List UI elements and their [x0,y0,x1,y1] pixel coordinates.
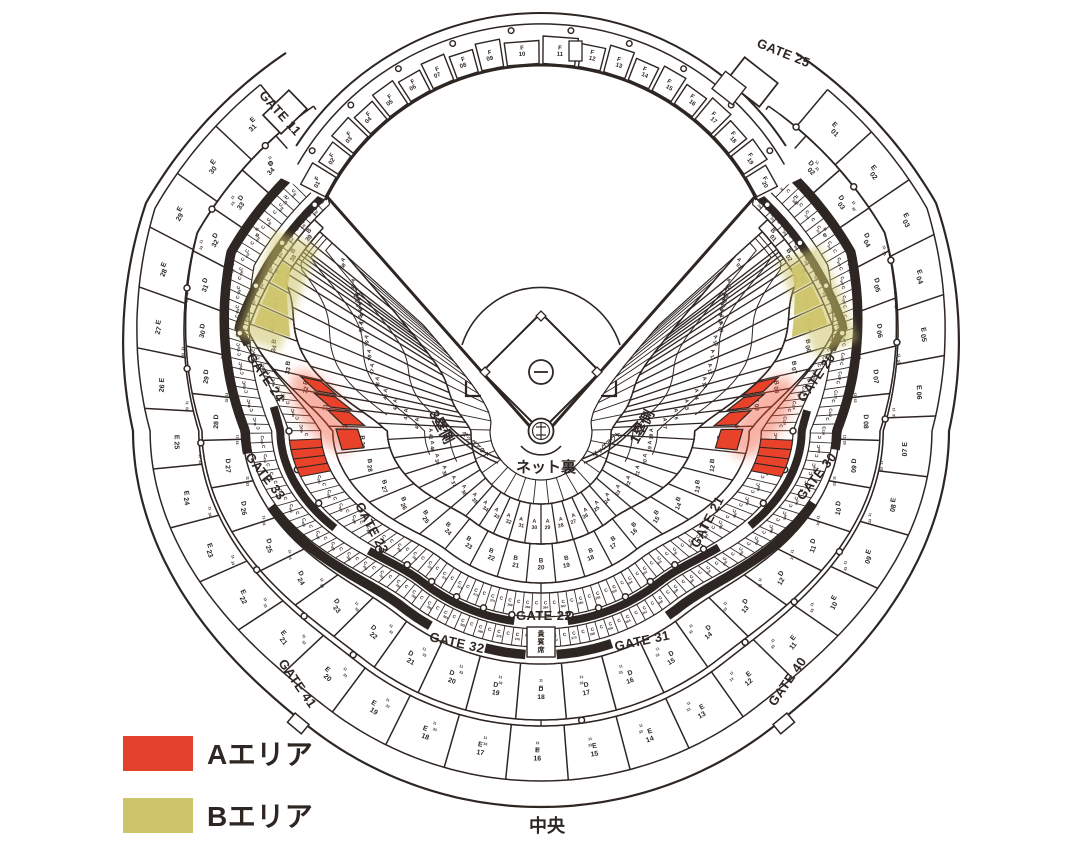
svg-text:貴: 貴 [538,629,545,638]
svg-text:33: 33 [483,742,488,747]
svg-text:33: 33 [579,681,584,686]
svg-text:20: 20 [538,565,545,572]
svg-text:中央: 中央 [529,815,566,836]
svg-text:33: 33 [891,414,895,418]
svg-text:40: 40 [428,446,435,453]
svg-text:33: 33 [880,467,884,471]
svg-text:11: 11 [588,737,592,742]
svg-text:17: 17 [582,689,591,697]
svg-text:18: 18 [537,694,545,701]
svg-text:D: D [862,414,869,419]
svg-text:33: 33 [225,398,230,403]
svg-text:賓: 賓 [537,637,545,646]
svg-text:30: 30 [531,525,537,531]
svg-text:33: 33 [842,441,846,445]
svg-text:402: 402 [291,411,295,417]
svg-text:A: A [415,417,421,421]
svg-text:33: 33 [868,519,873,524]
svg-text:33: 33 [207,512,212,517]
svg-text:ネット裏: ネット裏 [516,458,577,476]
svg-text:11: 11 [842,435,846,439]
svg-text:A: A [661,418,667,422]
svg-text:414: 414 [253,420,257,426]
svg-text:D: D [213,414,220,419]
svg-text:E: E [173,435,180,440]
svg-text:11: 11 [880,461,884,465]
svg-text:29: 29 [203,376,211,385]
svg-text:16: 16 [533,755,541,762]
svg-text:29: 29 [545,525,551,531]
svg-text:18: 18 [649,434,655,440]
svg-text:33: 33 [235,441,239,445]
svg-text:19: 19 [491,689,500,697]
svg-text:11: 11 [198,454,202,458]
svg-text:06: 06 [914,391,922,400]
svg-text:11: 11 [868,513,873,518]
svg-text:28: 28 [213,421,220,429]
svg-text:A: A [649,428,655,432]
svg-text:26: 26 [159,384,167,393]
svg-text:Aエリア: Aエリア [207,739,313,770]
svg-text:07: 07 [902,448,909,456]
svg-text:41: 41 [427,434,433,440]
svg-text:334: 334 [821,430,825,436]
svg-text:33: 33 [185,407,189,411]
svg-text:11: 11 [556,52,563,58]
svg-text:E: E [902,442,909,447]
svg-text:11: 11 [245,476,249,480]
svg-text:27: 27 [224,465,232,473]
svg-text:11: 11 [579,675,583,680]
svg-text:33: 33 [588,743,593,748]
svg-text:11: 11 [832,476,836,480]
svg-text:33: 33 [536,747,540,751]
svg-text:GATE 22: GATE 22 [516,608,572,623]
svg-text:17: 17 [476,749,485,757]
svg-text:336: 336 [817,448,821,454]
svg-text:11: 11 [498,675,502,680]
svg-text:A: A [532,518,536,524]
svg-text:11: 11 [235,435,239,439]
svg-text:33: 33 [853,398,858,403]
svg-text:400: 400 [300,427,304,433]
svg-text:25: 25 [173,441,180,449]
svg-text:11: 11 [185,401,189,405]
svg-text:11: 11 [539,679,543,683]
svg-text:412: 412 [260,439,264,445]
svg-text:11: 11 [891,408,895,412]
svg-text:07: 07 [871,376,879,385]
svg-text:A: A [546,518,550,524]
svg-text:33: 33 [539,685,543,689]
svg-text:09: 09 [851,465,859,473]
svg-text:D: D [851,458,858,464]
svg-text:33: 33 [198,460,202,464]
svg-text:376: 376 [515,637,521,642]
svg-text:11: 11 [207,506,212,510]
svg-text:24: 24 [182,497,190,506]
svg-text:33: 33 [245,482,249,486]
svg-text:416: 416 [247,402,252,408]
svg-text:19: 19 [647,446,654,453]
svg-text:33: 33 [832,482,836,486]
svg-text:33: 33 [498,681,503,686]
svg-text:11: 11 [483,736,488,741]
svg-text:A: A [427,428,433,432]
svg-text:D: D [224,458,231,464]
svg-text:10: 10 [519,52,527,59]
svg-text:B: B [539,557,544,564]
svg-text:Bエリア: Bエリア [207,801,313,832]
svg-text:11: 11 [536,741,540,745]
svg-text:15: 15 [590,750,599,758]
svg-text:席: 席 [538,645,545,654]
svg-text:08: 08 [862,421,869,429]
